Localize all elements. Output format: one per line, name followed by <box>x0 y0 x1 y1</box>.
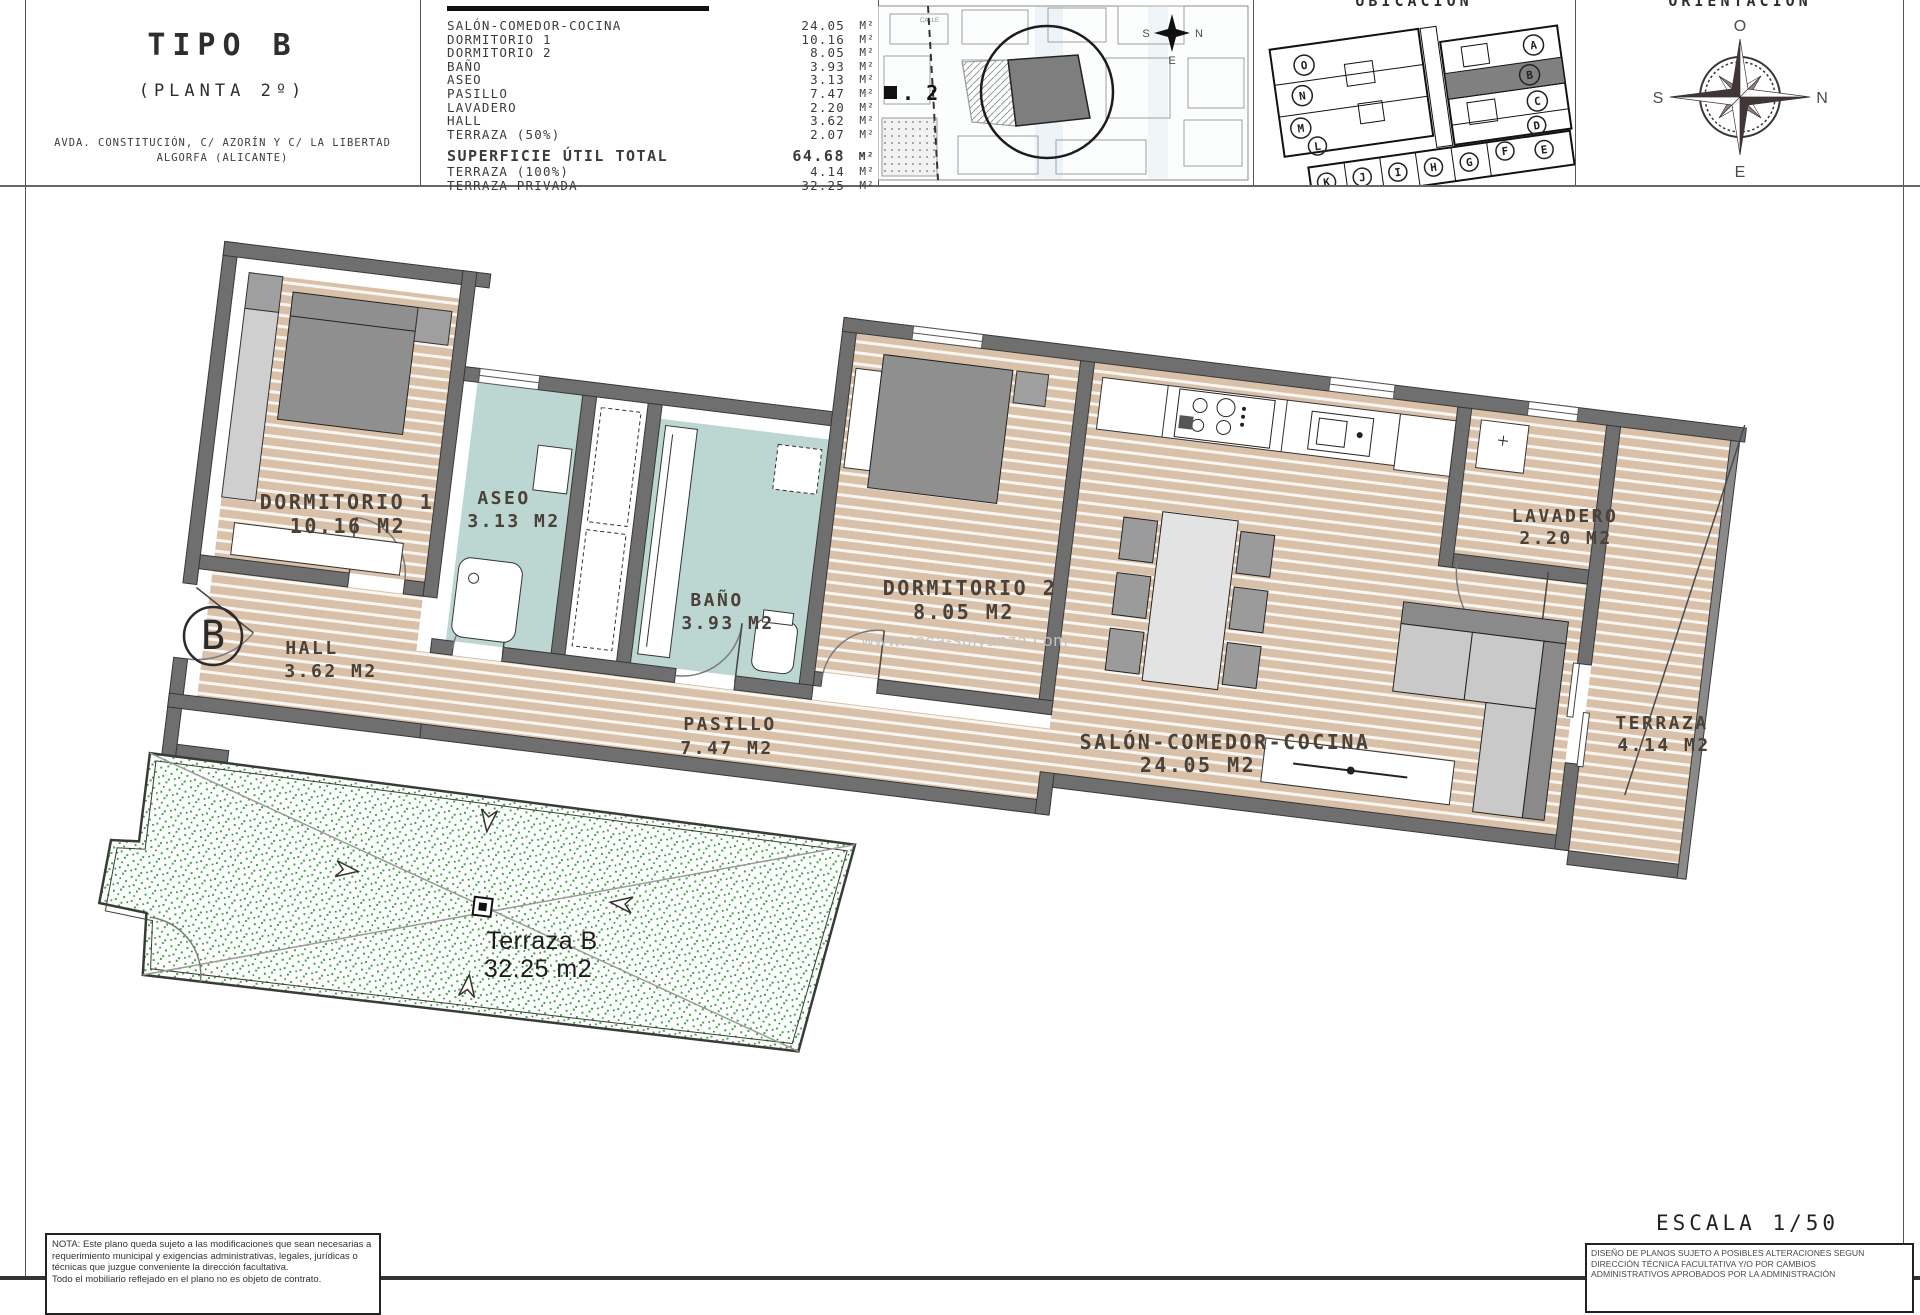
table-row: TERRAZA (50%)2.07M² <box>447 128 875 142</box>
watermark: www.casa-solyanza.com <box>860 631 1068 650</box>
label-terraza-b-area: 32.25 m2 <box>484 955 592 983</box>
table-row: BAÑO3.93M² <box>447 60 875 74</box>
label-bano: BAÑO <box>690 588 743 611</box>
row-unit: M² <box>845 73 875 87</box>
row-value: 10.16 <box>789 33 845 47</box>
row-unit: M² <box>845 60 875 74</box>
terrace-drain-icon <box>473 897 493 917</box>
disclaimer-line: DIRECCIÓN TÉCNICA FACULTATIVA Y/O POR CA… <box>1591 1259 1908 1270</box>
highlighted-plot <box>1008 55 1090 126</box>
title-block: TIPO B (PLANTA 2º) AVDA. CONSTITUCIÓN, C… <box>25 0 420 185</box>
plan-type-title: TIPO B <box>25 28 420 63</box>
disclaimer-box: DISEÑO DE PLANOS SUJETO A POSIBLES ALTER… <box>1585 1243 1914 1313</box>
total-value: 4.14 <box>789 165 845 179</box>
dining-table-icon <box>1104 507 1276 694</box>
ubicacion-title: UBICACIÓN <box>1355 0 1472 10</box>
nightstand-icon <box>414 307 452 345</box>
table-row: SALÓN-COMEDOR-COCINA24.05M² <box>447 19 875 33</box>
svg-text:E: E <box>1168 55 1175 67</box>
total-unit: M² <box>845 148 875 165</box>
nightstand-icon <box>1013 371 1049 407</box>
closet-icon <box>245 273 283 313</box>
table-top-bar <box>447 6 709 11</box>
row-value: 3.13 <box>789 73 845 87</box>
table-row: HALL3.62M² <box>447 114 875 128</box>
row-label: BAÑO <box>447 60 789 74</box>
label-pasillo: PASILLO <box>683 714 776 735</box>
nota-line: técnicas que juzgue conveniente la direc… <box>52 1262 374 1274</box>
label-aseo-area: 3.13 M2 <box>467 511 560 532</box>
scale-label: ESCALA 1/50 <box>1590 1211 1905 1235</box>
label-hall-area: 3.62 M2 <box>284 661 377 682</box>
row-unit: M² <box>845 128 875 142</box>
nota-box: NOTA: Este plano queda sujeto a las modi… <box>45 1233 381 1315</box>
label-hall: HALL <box>285 638 338 659</box>
compass-west-label: O <box>1734 18 1746 35</box>
svg-text:N: N <box>1195 28 1203 40</box>
total-row: TERRAZA (100%)4.14M² <box>447 165 875 179</box>
nota-line: Todo el mobiliario reflejado en el plano… <box>52 1274 374 1286</box>
row-label: HALL <box>447 114 789 128</box>
row-unit: M² <box>845 114 875 128</box>
row-value: 2.07 <box>789 128 845 142</box>
row-value: 7.47 <box>789 87 845 101</box>
compass-rose-icon: O N S E <box>1653 18 1828 181</box>
label-lavadero: LAVADERO <box>1512 506 1619 527</box>
sink-icon <box>773 444 822 494</box>
fridge-icon <box>1394 414 1456 476</box>
shower-icon <box>450 556 523 643</box>
label-dormitorio-1: DORMITORIO 1 <box>260 490 435 514</box>
row-label: LAVADERO <box>447 101 789 115</box>
row-label: SALÓN-COMEDOR-COCINA <box>447 19 789 33</box>
terrace-b <box>91 749 855 1059</box>
row-label: DORMITORIO 2 <box>447 46 789 60</box>
table-row: ASEO3.13M² <box>447 73 875 87</box>
disclaimer-line: DISEÑO DE PLANOS SUJETO A POSIBLES ALTER… <box>1591 1248 1908 1259</box>
address-line-1: AVDA. CONSTITUCIÓN, C/ AZORÍN Y C/ LA LI… <box>25 136 420 151</box>
svg-text:S: S <box>1142 28 1149 40</box>
orientacion-panel: ORIENTACIÓN O N S E <box>1575 0 1903 185</box>
row-label: PASILLO <box>447 87 789 101</box>
label-pasillo-area: 7.47 M2 <box>680 738 773 759</box>
compass-east-label: E <box>1735 164 1746 181</box>
row-unit: M² <box>845 101 875 115</box>
label-terraza: TERRAZA <box>1615 713 1708 734</box>
nota-line: NOTA: Este plano queda sujeto a las modi… <box>52 1239 374 1251</box>
label-lavadero-area: 2.20 M2 <box>1519 528 1612 549</box>
row-value: 24.05 <box>789 19 845 33</box>
compass-south-label: S <box>1653 90 1664 107</box>
row-label: DORMITORIO 1 <box>447 33 789 47</box>
row-unit: M² <box>845 33 875 47</box>
stippled-area <box>882 118 937 176</box>
orientacion-title: ORIENTACIÓN <box>1668 0 1811 10</box>
table-row: DORMITORIO 110.16M² <box>447 33 875 47</box>
row-label: ASEO <box>447 73 789 87</box>
site-map-panel: CALLE . 2 S N E <box>878 0 1253 185</box>
plot-label-block <box>884 86 897 99</box>
label-dormitorio-2-area: 8.05 M2 <box>913 600 1015 624</box>
compass-north-label: N <box>1816 90 1828 107</box>
floor-plan-area: B DORMITORIO 1 10.16 M2 ASEO 3.13 M2 HAL… <box>0 185 1920 1284</box>
total-row: SUPERFICIE ÚTIL TOTAL64.68M² <box>447 148 875 165</box>
row-label: TERRAZA (50%) <box>447 128 789 142</box>
label-terraza-b: Terraza B <box>486 927 597 955</box>
unit-marker-letter: B <box>201 613 225 659</box>
building-site-plan: O N M L A B C D K J I H G F E <box>1270 10 1575 185</box>
row-value: 2.20 <box>789 101 845 115</box>
nota-line: requerimiento municipal y exigencias adm… <box>52 1251 374 1263</box>
bed-icon <box>868 355 1013 504</box>
row-unit: M² <box>845 19 875 33</box>
area-table: SALÓN-COMEDOR-COCINA24.05M² DORMITORIO 1… <box>447 6 875 193</box>
total-value: 64.68 <box>789 148 845 165</box>
disclaimer-line: ADMINISTRATIVOS APROBADOS POR LA ADMINIS… <box>1591 1269 1908 1280</box>
row-unit: M² <box>845 46 875 60</box>
header-separator-1 <box>420 0 421 185</box>
total-label: TERRAZA (100%) <box>447 165 789 179</box>
table-row: LAVADERO2.20M² <box>447 101 875 115</box>
label-dormitorio-1-area: 10.16 M2 <box>290 514 406 538</box>
bed-icon <box>278 292 419 434</box>
label-salon: SALÓN-COMEDOR-COCINA <box>1080 730 1371 754</box>
row-value: 3.93 <box>789 60 845 74</box>
label-bano-area: 3.93 M2 <box>681 613 774 634</box>
row-unit: M² <box>845 87 875 101</box>
row-value: 8.05 <box>789 46 845 60</box>
kitchen-sink-icon <box>1308 411 1374 456</box>
plan-floor-subtitle: (PLANTA 2º) <box>25 81 420 101</box>
laundry-sink-icon <box>1476 420 1529 473</box>
ubicacion-panel: UBICACIÓN O N M L A B C D K J I H G <box>1253 0 1575 185</box>
label-salon-area: 24.05 M2 <box>1140 753 1256 777</box>
table-row: DORMITORIO 28.05M² <box>447 46 875 60</box>
total-label: SUPERFICIE ÚTIL TOTAL <box>447 148 789 165</box>
plot-number-label: . 2 <box>902 81 938 105</box>
total-unit: M² <box>845 165 875 179</box>
table-row: PASILLO7.47M² <box>447 87 875 101</box>
sink-icon <box>533 445 572 494</box>
label-dormitorio-2: DORMITORIO 2 <box>883 576 1058 600</box>
row-value: 3.62 <box>789 114 845 128</box>
label-aseo: ASEO <box>477 488 530 509</box>
label-terraza-area: 4.14 M2 <box>1617 735 1710 756</box>
address: AVDA. CONSTITUCIÓN, C/ AZORÍN Y C/ LA LI… <box>25 136 420 166</box>
address-line-2: ALGORFA (ALICANTE) <box>25 151 420 166</box>
compass-cardinal-points <box>1670 39 1810 155</box>
